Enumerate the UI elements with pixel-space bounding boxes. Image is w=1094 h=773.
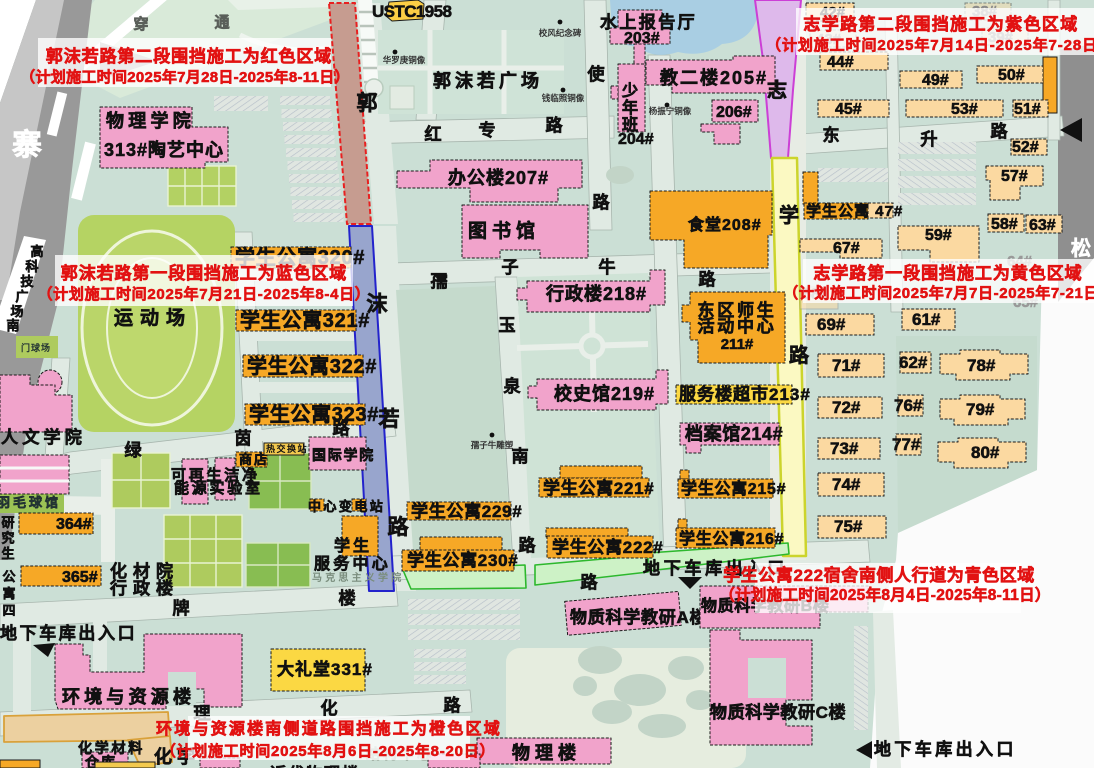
svg-text:生: 生 xyxy=(1,546,14,561)
svg-text:路: 路 xyxy=(333,418,351,438)
svg-text:路: 路 xyxy=(519,535,537,555)
svg-text:四: 四 xyxy=(2,603,15,618)
svg-text:国际学院: 国际学院 xyxy=(312,447,375,463)
svg-text:绿: 绿 xyxy=(125,440,143,460)
svg-text:教二楼205#: 教二楼205# xyxy=(660,67,768,88)
svg-text:环境与资源楼南侧道路围挡施工为橙色区域: 环境与资源楼南侧道路围挡施工为橙色区域 xyxy=(156,719,502,738)
svg-text:路: 路 xyxy=(444,695,462,715)
svg-text:楼: 楼 xyxy=(339,588,356,608)
svg-text:郭: 郭 xyxy=(357,91,378,115)
svg-text:USTC1958: USTC1958 xyxy=(372,2,451,21)
svg-text:204#: 204# xyxy=(618,131,654,148)
svg-text:物质科学教研C楼: 物质科学教研C楼 xyxy=(710,702,846,722)
svg-text:（计划施工时间2025年7月28日-2025年8-11日）: （计划施工时间2025年7月28日-2025年8-11日） xyxy=(20,68,350,86)
svg-text:子: 子 xyxy=(502,258,519,277)
svg-text:物质科学教研A楼: 物质科学教研A楼 xyxy=(570,607,707,627)
svg-text:路: 路 xyxy=(546,115,564,135)
svg-text:服务楼超市213#: 服务楼超市213# xyxy=(679,384,811,404)
svg-text:学生公寓322#: 学生公寓322# xyxy=(247,354,377,378)
svg-text:364#: 364# xyxy=(56,516,92,533)
svg-text:（计划施工时间2025年8月4日-2025年8-11日）: （计划施工时间2025年8月4日-2025年8-11日） xyxy=(719,585,1050,604)
svg-text:牌: 牌 xyxy=(173,598,190,618)
svg-text:学生公寓 47#: 学生公寓 47# xyxy=(806,202,903,220)
svg-text:61#: 61# xyxy=(912,310,941,329)
svg-text:365#: 365# xyxy=(62,569,98,586)
svg-text:313#陶艺中心: 313#陶艺中心 xyxy=(104,139,224,160)
svg-text:58#: 58# xyxy=(991,216,1018,233)
svg-text:郭沫若路第一段围挡施工为蓝色区域: 郭沫若路第一段围挡施工为蓝色区域 xyxy=(61,263,347,283)
svg-text:路: 路 xyxy=(699,269,717,289)
svg-text:南: 南 xyxy=(6,318,19,333)
svg-text:路: 路 xyxy=(581,572,599,592)
svg-text:科: 科 xyxy=(25,259,38,274)
svg-text:郭沫若广场: 郭沫若广场 xyxy=(433,70,543,91)
svg-text:49#: 49# xyxy=(922,72,949,89)
svg-text:人文学院: 人文学院 xyxy=(1,427,86,447)
svg-text:路: 路 xyxy=(593,192,611,212)
svg-text:牛: 牛 xyxy=(599,257,616,277)
svg-text:志: 志 xyxy=(767,79,787,102)
svg-text:行政楼218#: 行政楼218# xyxy=(545,283,647,304)
svg-text:（计划施工时间2025年8月6日-2025年8-20日）: （计划施工时间2025年8月6日-2025年8-20日） xyxy=(161,742,495,760)
svg-text:63#: 63# xyxy=(1029,217,1056,234)
svg-text:行政楼: 行政楼 xyxy=(109,578,179,598)
svg-text:究: 究 xyxy=(1,531,14,546)
svg-text:马克思主义学院: 马克思主义学院 xyxy=(312,571,404,584)
svg-text:南: 南 xyxy=(512,446,529,466)
svg-text:52#: 52# xyxy=(1012,139,1039,156)
svg-text:寨: 寨 xyxy=(12,128,42,162)
svg-text:学生公寓216#: 学生公寓216# xyxy=(679,529,784,548)
svg-text:206#: 206# xyxy=(716,104,752,121)
svg-text:少: 少 xyxy=(621,81,638,100)
svg-text:校风纪念碑: 校风纪念碑 xyxy=(539,28,582,38)
svg-text:图书馆: 图书馆 xyxy=(468,219,540,242)
svg-text:茵: 茵 xyxy=(235,428,252,448)
svg-text:73#: 73# xyxy=(830,439,859,458)
svg-text:郭沫若路第二段围挡施工为红色区域: 郭沫若路第二段围挡施工为红色区域 xyxy=(46,46,332,66)
svg-text:72#: 72# xyxy=(832,398,861,417)
svg-text:78#: 78# xyxy=(967,356,996,375)
svg-text:地下车库出入口: 地下车库出入口 xyxy=(0,623,137,643)
svg-text:学生: 学生 xyxy=(334,536,372,555)
svg-text:（计划施工时间2025年7月14日-2025年7-28日）: （计划施工时间2025年7月14日-2025年7-28日） xyxy=(766,36,1094,54)
svg-text:学生公寓221#: 学生公寓221# xyxy=(543,478,654,498)
svg-text:杨振宁铜像: 杨振宁铜像 xyxy=(649,106,692,116)
svg-text:场: 场 xyxy=(10,304,23,319)
svg-text:服务中心: 服务中心 xyxy=(314,554,391,573)
svg-text:74#: 74# xyxy=(832,475,861,494)
svg-text:69#: 69# xyxy=(817,315,846,334)
svg-text:高: 高 xyxy=(30,244,43,259)
svg-text:77#: 77# xyxy=(892,435,921,454)
svg-text:71#: 71# xyxy=(832,356,861,375)
svg-text:76#: 76# xyxy=(894,396,923,415)
svg-text:211#: 211# xyxy=(721,336,754,353)
svg-text:75#: 75# xyxy=(834,517,863,536)
svg-text:51#: 51# xyxy=(1014,101,1041,118)
svg-text:79#: 79# xyxy=(966,400,995,419)
svg-text:东: 东 xyxy=(823,125,840,145)
svg-text:公: 公 xyxy=(2,569,15,584)
svg-text:年: 年 xyxy=(622,98,638,117)
svg-text:学: 学 xyxy=(779,203,799,227)
svg-text:80#: 80# xyxy=(971,443,1000,462)
svg-text:学生公寓222宿舍南侧人行道为青色区域: 学生公寓222宿舍南侧人行道为青色区域 xyxy=(723,565,1035,585)
svg-text:物理楼: 物理楼 xyxy=(512,742,581,763)
svg-text:中心变电站: 中心变电站 xyxy=(308,499,385,514)
svg-text:广: 广 xyxy=(15,289,28,304)
svg-text:玉: 玉 xyxy=(499,316,516,335)
svg-text:学生公寓230#: 学生公寓230# xyxy=(407,550,518,570)
svg-text:寓: 寓 xyxy=(2,586,15,601)
svg-text:校史馆219#: 校史馆219# xyxy=(554,383,655,404)
svg-text:化: 化 xyxy=(321,698,338,718)
svg-text:门球场: 门球场 xyxy=(21,342,51,353)
svg-text:学生公寓222#: 学生公寓222# xyxy=(552,537,663,557)
svg-text:若: 若 xyxy=(378,408,400,431)
svg-text:羽毛球馆: 羽毛球馆 xyxy=(0,495,61,510)
svg-text:升: 升 xyxy=(921,130,938,149)
svg-text:45#: 45# xyxy=(835,101,862,118)
svg-text:穿: 穿 xyxy=(133,15,148,33)
svg-text:学生公寓215#: 学生公寓215# xyxy=(681,479,786,498)
svg-text:59#: 59# xyxy=(925,227,952,244)
svg-text:研: 研 xyxy=(1,515,14,530)
svg-text:办公楼207#: 办公楼207# xyxy=(448,167,549,188)
svg-text:使: 使 xyxy=(587,64,606,84)
svg-text:环境与资源楼: 环境与资源楼 xyxy=(62,686,195,707)
svg-text:物理学院: 物理学院 xyxy=(106,110,195,131)
svg-text:学生公寓323#: 学生公寓323# xyxy=(249,402,379,426)
svg-text:62#: 62# xyxy=(899,353,928,372)
svg-text:化材院: 化材院 xyxy=(110,561,179,581)
svg-text:67#: 67# xyxy=(833,240,860,257)
svg-text:热交换站: 热交换站 xyxy=(266,443,308,454)
svg-text:学生公寓321#: 学生公寓321# xyxy=(240,308,370,332)
svg-text:食堂208#: 食堂208# xyxy=(687,215,762,234)
svg-text:53#: 53# xyxy=(951,101,978,118)
svg-text:活动中心: 活动中心 xyxy=(698,316,777,336)
svg-text:路: 路 xyxy=(789,343,810,367)
svg-text:水上报告厅: 水上报告厅 xyxy=(600,12,697,32)
svg-text:能源实验室: 能源实验室 xyxy=(174,479,263,497)
svg-text:学生公寓229#: 学生公寓229# xyxy=(411,501,522,521)
svg-text:孺子牛雕塑: 孺子牛雕塑 xyxy=(471,440,514,450)
svg-text:技: 技 xyxy=(20,274,34,289)
svg-text:华罗庚铜像: 华罗庚铜像 xyxy=(383,55,426,65)
svg-text:松: 松 xyxy=(1071,237,1091,260)
svg-text:44#: 44# xyxy=(827,54,854,71)
svg-text:路: 路 xyxy=(991,121,1009,141)
svg-text:志学路第二段围挡施工为紫色区域: 志学路第二段围挡施工为紫色区域 xyxy=(803,14,1078,34)
svg-text:孺: 孺 xyxy=(431,272,448,291)
svg-text:50#: 50# xyxy=(998,67,1025,84)
svg-text:地下车库出入口: 地下车库出入口 xyxy=(874,739,1017,759)
svg-text:路: 路 xyxy=(388,515,410,539)
svg-text:档案馆214#: 档案馆214# xyxy=(685,423,783,444)
svg-text:通: 通 xyxy=(214,14,229,31)
svg-text:志学路第一段围挡施工为黄色区域: 志学路第一段围挡施工为黄色区域 xyxy=(813,263,1082,283)
svg-text:专: 专 xyxy=(479,120,496,140)
svg-text:（计划施工时间2025年7月21日-2025年8-4日）: （计划施工时间2025年7月21日-2025年8-4日） xyxy=(37,285,370,303)
svg-text:（计划施工时间2025年7月7日-2025年7-21日）: （计划施工时间2025年7月7日-2025年7-21日） xyxy=(783,284,1094,302)
svg-text:红: 红 xyxy=(425,124,442,144)
svg-text:泉: 泉 xyxy=(503,376,522,396)
svg-text:大礼堂331#: 大礼堂331# xyxy=(277,659,373,679)
svg-text:57#: 57# xyxy=(1001,168,1028,185)
svg-text:运动场: 运动场 xyxy=(114,307,192,329)
svg-text:钱临照铜像: 钱临照铜像 xyxy=(542,93,585,103)
